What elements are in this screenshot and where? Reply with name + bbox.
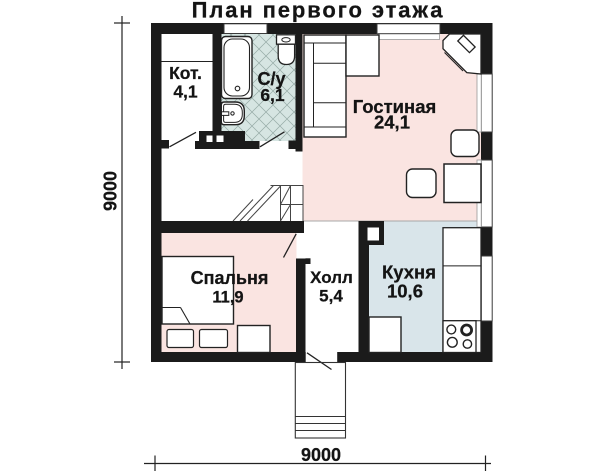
svg-text:6,1: 6,1 xyxy=(260,85,285,105)
svg-text:4,1: 4,1 xyxy=(173,82,198,102)
svg-text:24,1: 24,1 xyxy=(374,112,410,133)
svg-text:План первого этажа: План первого этажа xyxy=(192,0,445,23)
svg-text:Кот.: Кот. xyxy=(169,63,202,83)
svg-text:Холл: Холл xyxy=(310,268,353,287)
svg-text:9000: 9000 xyxy=(101,171,121,211)
svg-text:Кухня: Кухня xyxy=(382,262,436,283)
svg-text:10,6: 10,6 xyxy=(387,281,423,302)
svg-text:11,9: 11,9 xyxy=(212,289,243,307)
svg-text:9000: 9000 xyxy=(301,445,341,465)
svg-text:Спальня: Спальня xyxy=(191,268,269,288)
svg-text:5,4: 5,4 xyxy=(319,287,343,306)
